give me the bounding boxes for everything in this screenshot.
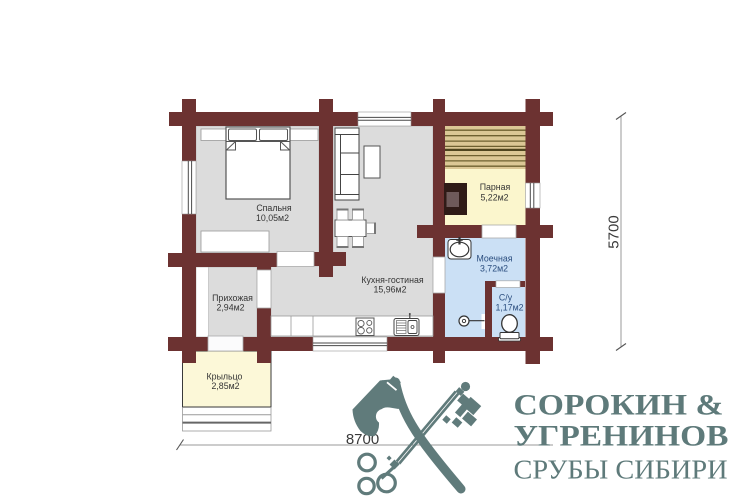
svg-text:Моечная: Моечная bbox=[476, 254, 512, 264]
svg-text:Парная: Парная bbox=[480, 182, 511, 192]
svg-text:5,22м2: 5,22м2 bbox=[480, 193, 508, 203]
svg-text:3,72м2: 3,72м2 bbox=[480, 263, 508, 273]
svg-text:15,96м2: 15,96м2 bbox=[374, 284, 407, 294]
svg-text:Крыльцо: Крыльцо bbox=[207, 372, 243, 382]
svg-text:2,85м2: 2,85м2 bbox=[211, 381, 239, 391]
svg-text:1,17м2: 1,17м2 bbox=[495, 302, 523, 312]
svg-text:УГРЕНИНОВ: УГРЕНИНОВ bbox=[514, 420, 729, 453]
svg-text:10,05м2: 10,05м2 bbox=[256, 213, 289, 223]
svg-text:С/у: С/у bbox=[499, 293, 513, 303]
svg-text:СРУБЫ СИБИРИ: СРУБЫ СИБИРИ bbox=[514, 454, 728, 485]
svg-text:Спальня: Спальня bbox=[256, 203, 292, 213]
svg-text:5700: 5700 bbox=[606, 215, 623, 248]
svg-text:2,94м2: 2,94м2 bbox=[216, 302, 244, 312]
svg-text:Прихожая: Прихожая bbox=[212, 293, 253, 303]
svg-text:СОРОКИН &: СОРОКИН & bbox=[514, 389, 724, 422]
